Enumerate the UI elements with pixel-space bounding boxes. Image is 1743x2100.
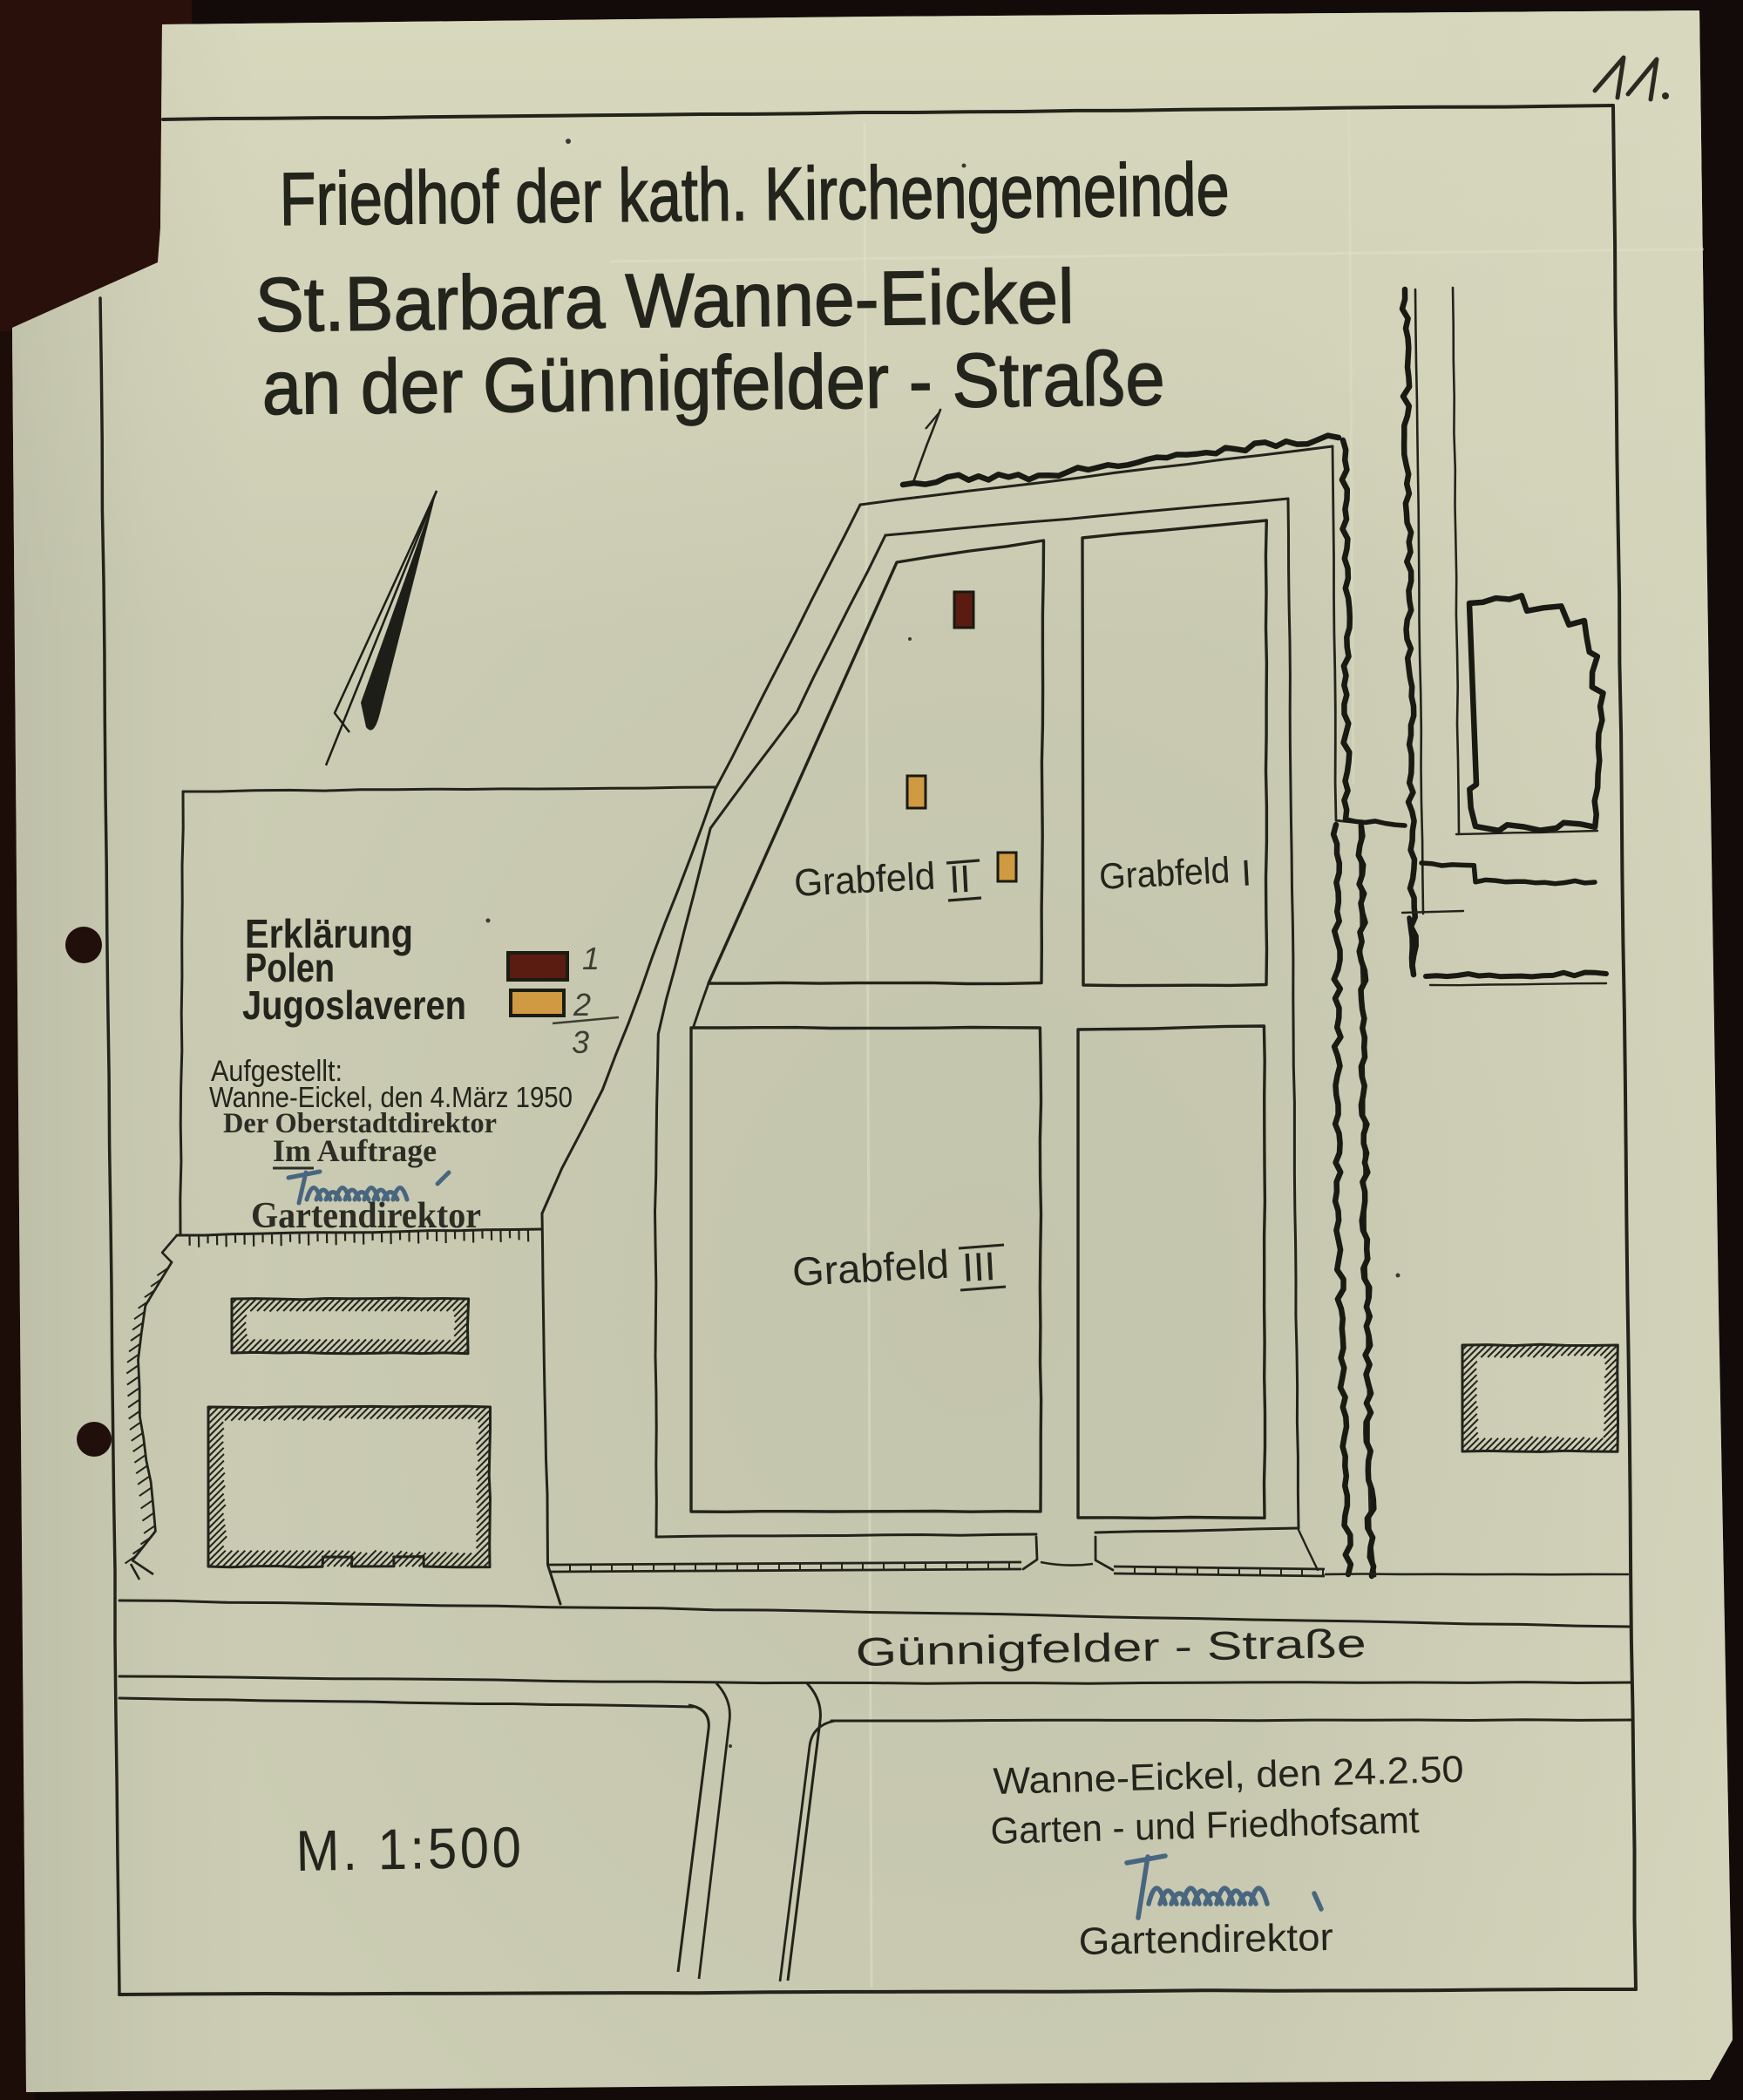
svg-text:I: I xyxy=(1240,852,1252,894)
svg-text:Im Auftrage: Im Auftrage xyxy=(273,1133,437,1168)
svg-text:Grabfeld: Grabfeld xyxy=(1098,849,1231,897)
svg-text:2: 2 xyxy=(573,987,591,1023)
svg-text:3: 3 xyxy=(572,1024,589,1060)
svg-text:Grabfeld: Grabfeld xyxy=(791,1241,950,1295)
svg-text:Jugoslaveren: Jugoslaveren xyxy=(242,982,466,1028)
svg-text:III: III xyxy=(961,1243,997,1290)
svg-text:Grabfeld: Grabfeld xyxy=(793,855,936,905)
svg-text:St.Barbara Wanne-Eickel: St.Barbara Wanne-Eickel xyxy=(254,253,1075,348)
svg-text:II: II xyxy=(948,858,972,901)
svg-text:1: 1 xyxy=(582,941,600,976)
svg-text:Gartendirektor: Gartendirektor xyxy=(1078,1916,1333,1963)
svg-text:Friedhof der kath. Kirchengeme: Friedhof der kath. Kirchengemeinde xyxy=(279,148,1230,241)
svg-text:Günnigfelder - Straße: Günnigfelder - Straße xyxy=(855,1621,1367,1675)
svg-text:an der Günnigfelder - Straße: an der Günnigfelder - Straße xyxy=(261,335,1165,431)
svg-text:M. 1:500: M. 1:500 xyxy=(295,1814,525,1883)
